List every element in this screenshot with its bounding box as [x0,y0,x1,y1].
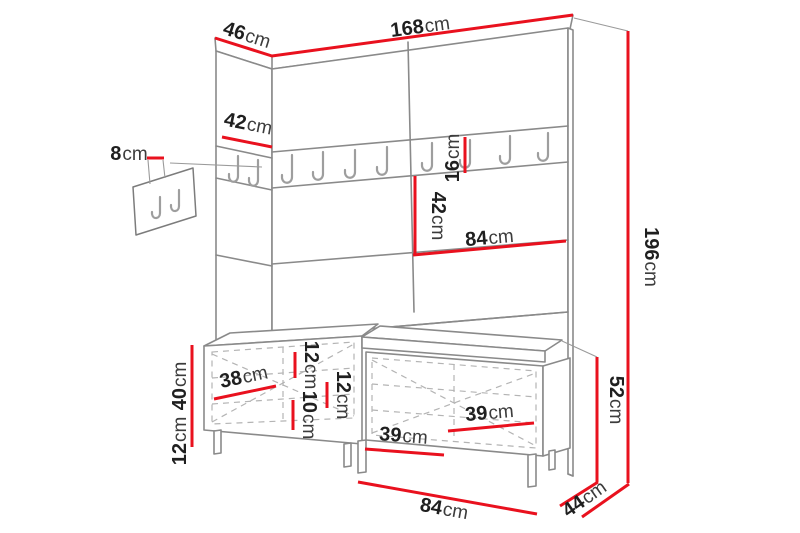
dimension-diagram-page: 168cm 46cm 42cm 8cm 16cm 42cm 84cm 196cm… [0,0,800,533]
left-bench-leg [344,443,351,467]
dim-bench-total-height-label: 52cm [605,376,627,425]
hallway-set-dimension-diagram: 168cm 46cm 42cm 8cm 16cm 42cm 84cm 196cm… [0,0,800,533]
leader-line-total-height [574,18,628,31]
right-bench-side [543,358,570,456]
dim-inner-height-label: 12cm [332,371,354,420]
right-bench-leg [528,454,536,487]
dim-bench-box-height-label: 40cm [169,362,191,411]
dim-right-door-upper-label: 39cm [464,400,514,426]
left-bench-leg [214,430,221,454]
extension-line [148,160,150,184]
dim-bottom-gap-label: 10cm [298,391,320,440]
front-panel [272,28,568,337]
dim-right-door-lower-label: 39cm [378,423,428,449]
extension-line [163,160,165,178]
right-bench-leg [549,450,555,470]
dim-seat-thickness-label: 12cm [300,341,322,390]
left-wing-panel [216,51,272,354]
dim-bench-width-label: 84cm [418,494,470,524]
dim-wall-hooks-width-label: 8cm [110,143,147,165]
dim-bench-leg-height-label: 12cm [169,417,191,466]
dim-rail-to-shelf-label: 42cm [427,192,449,241]
dim-hook-rail-height-label: 16cm [442,134,464,183]
right-bench-leg [358,440,366,473]
dim-total-height-label: 196cm [640,227,662,287]
dimension-line-right-door-lower [365,449,444,455]
dim-panel-half-width-label: 84cm [464,225,514,251]
